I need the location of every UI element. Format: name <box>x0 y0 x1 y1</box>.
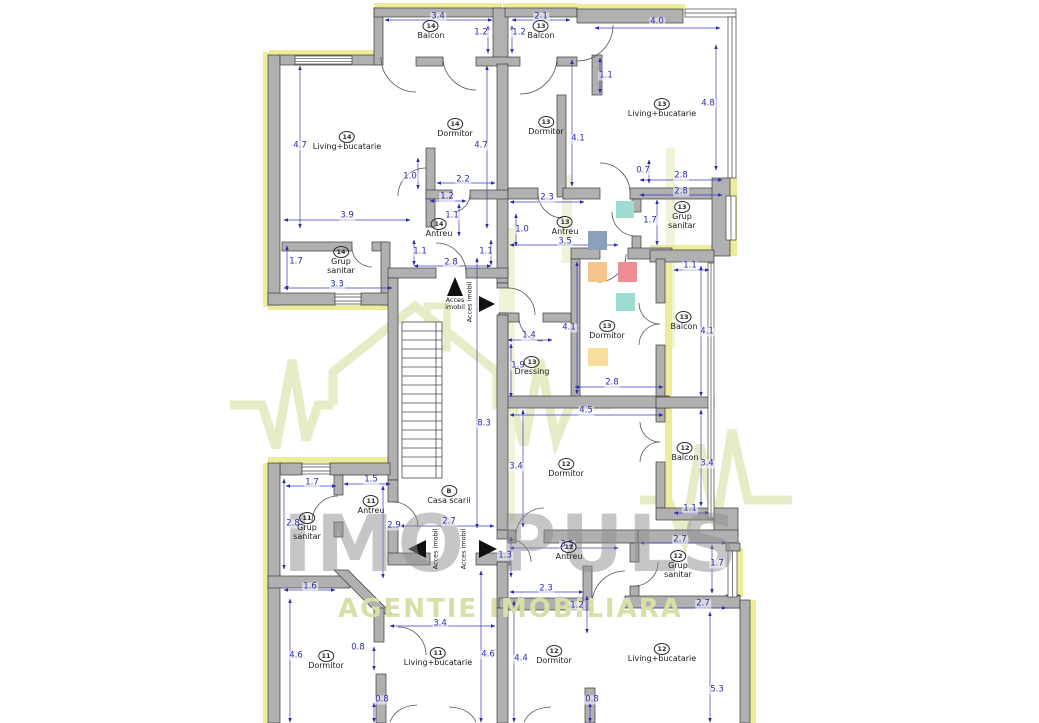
access-label: Acces imobil <box>467 282 474 323</box>
room-label: 13Dormitor <box>528 116 564 137</box>
room-label: 12Grupsanitar <box>664 550 692 579</box>
labels-overlay: 14Balcon13Balcon14Living+bucatarie14Dorm… <box>0 0 1039 723</box>
room-name: Living+bucatarie <box>628 110 696 119</box>
room-name: Living+bucatarie <box>313 143 381 152</box>
dimension-label: 3.4 <box>699 460 715 469</box>
dimension-label: 1.0 <box>402 173 418 182</box>
room-label: 14Antreu <box>426 218 453 239</box>
dimension-label: 2.7 <box>695 600 711 609</box>
room-name: Casa scarii <box>427 497 470 506</box>
room-label: 11Grupsanitar <box>293 512 321 541</box>
dimension-label: 3.4 <box>432 620 448 629</box>
room-name: Balcon <box>418 32 445 41</box>
dimension-label: 8.3 <box>476 420 492 429</box>
room-name: Dormitor <box>308 662 344 671</box>
room-label: 13Grupsanitar <box>668 201 696 230</box>
dimension-label: 1.5 <box>363 476 379 485</box>
dimension-label: 4.8 <box>700 100 716 109</box>
dimension-label: 4.7 <box>292 142 308 151</box>
dimension-label: 1.1 <box>412 248 428 257</box>
dimension-label: 4.4 <box>513 655 529 664</box>
dimension-label: 3.3 <box>329 281 345 290</box>
room-name: Dormitor <box>528 128 564 137</box>
room-name: Dormitor <box>548 470 584 479</box>
room-name: Dressing <box>515 368 550 377</box>
room-label: 13Living+bucatarie <box>628 98 696 119</box>
dimension-label: 1.7 <box>288 258 304 267</box>
access-label: Acces imobil <box>461 529 468 570</box>
dimension-label: 2.7 <box>672 536 688 545</box>
dimension-label: 4.1 <box>699 328 715 337</box>
room-name: Living+bucatarie <box>628 655 696 664</box>
dimension-label: 1.1 <box>478 248 494 257</box>
room-label: 13Antreu <box>552 216 579 237</box>
dimension-label: 0.8 <box>350 644 366 653</box>
room-label: 12Dormitor <box>536 645 572 666</box>
dimension-label: 2.7 <box>441 518 457 527</box>
room-label: 14Dormitor <box>437 118 473 139</box>
dimension-label: 2.8 <box>673 172 689 181</box>
dimension-label: 1.2 <box>439 193 455 202</box>
dimension-label: 1.2 <box>473 29 489 38</box>
room-name: Balcon <box>672 454 699 463</box>
dimension-label: 4.1 <box>570 135 586 144</box>
room-name: Antreu <box>556 553 583 562</box>
dimension-label: 0.8 <box>584 696 600 705</box>
room-label: 11Living+bucatarie <box>404 647 472 668</box>
room-label: 12Balcon <box>672 442 699 463</box>
dimension-label: 2.8 <box>443 259 459 268</box>
dimension-label: 3.9 <box>339 212 355 221</box>
dimension-label: 1.4 <box>521 332 537 341</box>
dimension-label: 2.3 <box>539 194 555 203</box>
dimension-label: 3.5 <box>557 238 573 247</box>
dimension-label: 2.9 <box>386 522 402 531</box>
room-name-line2: sanitar <box>664 571 692 580</box>
room-label: 14Living+bucatarie <box>313 131 381 152</box>
dimension-label: 1.3 <box>497 552 513 561</box>
room-label: 14Balcon <box>418 20 445 41</box>
dimension-label: 1.6 <box>302 583 318 592</box>
dimension-label: 1.7 <box>709 560 725 569</box>
room-name-line2: sanitar <box>293 533 321 542</box>
dimension-label: 0.7 <box>635 167 651 176</box>
dimension-label: 1.7 <box>304 479 320 488</box>
dimension-label: 4.6 <box>480 651 496 660</box>
room-label: 13Dormitor <box>589 320 625 341</box>
dimension-label: 4.6 <box>288 652 304 661</box>
room-label: BCasa scarii <box>427 485 470 506</box>
dimension-label: 1.7 <box>642 217 658 226</box>
room-label: 11Dormitor <box>308 650 344 671</box>
room-name: Dormitor <box>437 130 473 139</box>
room-label: 14Grupsanitar <box>327 246 355 275</box>
room-name-line2: sanitar <box>668 222 696 231</box>
dimension-label: 1.2 <box>511 29 527 38</box>
dimension-label: 2.2 <box>455 176 471 185</box>
room-name: Antreu <box>426 230 453 239</box>
access-label: Acces imobil <box>433 529 440 570</box>
room-label: 13Balcon <box>528 20 555 41</box>
room-label: 13Balcon <box>671 311 698 332</box>
room-name: Balcon <box>528 32 555 41</box>
dimension-label: 1.1 <box>682 505 698 514</box>
room-label: 12Living+bucatarie <box>628 643 696 664</box>
dimension-label: 1.2 <box>569 602 585 611</box>
room-label: 13Dressing <box>515 356 550 377</box>
dimension-label: 3.4 <box>508 463 524 472</box>
room-label: 12Antreu <box>556 541 583 562</box>
room-name: Dormitor <box>536 657 572 666</box>
dimension-label: 5.3 <box>709 686 725 695</box>
dimension-label: 1.0 <box>514 226 530 235</box>
dimension-label: 0.8 <box>374 696 390 705</box>
room-name-line2: sanitar <box>327 267 355 276</box>
dimension-label: 2.8 <box>673 188 689 197</box>
dimension-label: 4.5 <box>578 407 594 416</box>
room-name: Balcon <box>671 323 698 332</box>
dimension-label: 4.7 <box>473 142 489 151</box>
floor-plan-canvas: IMO PULS AGENTIE IMOBILIARA 14Balcon13Ba… <box>0 0 1039 723</box>
room-name: Living+bucatarie <box>404 659 472 668</box>
dimension-label: 2.8 <box>604 379 620 388</box>
dimension-label: 4.1 <box>561 324 577 333</box>
dimension-label: 1.1 <box>598 72 614 81</box>
room-label: 12Dormitor <box>548 458 584 479</box>
dimension-label: 4.0 <box>649 18 665 27</box>
room-name: Antreu <box>552 228 579 237</box>
dimension-label: 1.1 <box>682 262 698 271</box>
dimension-label: 2.3 <box>538 585 554 594</box>
room-name: Antreu <box>358 507 385 516</box>
room-name: Dormitor <box>589 332 625 341</box>
room-label: 11Antreu <box>358 495 385 516</box>
